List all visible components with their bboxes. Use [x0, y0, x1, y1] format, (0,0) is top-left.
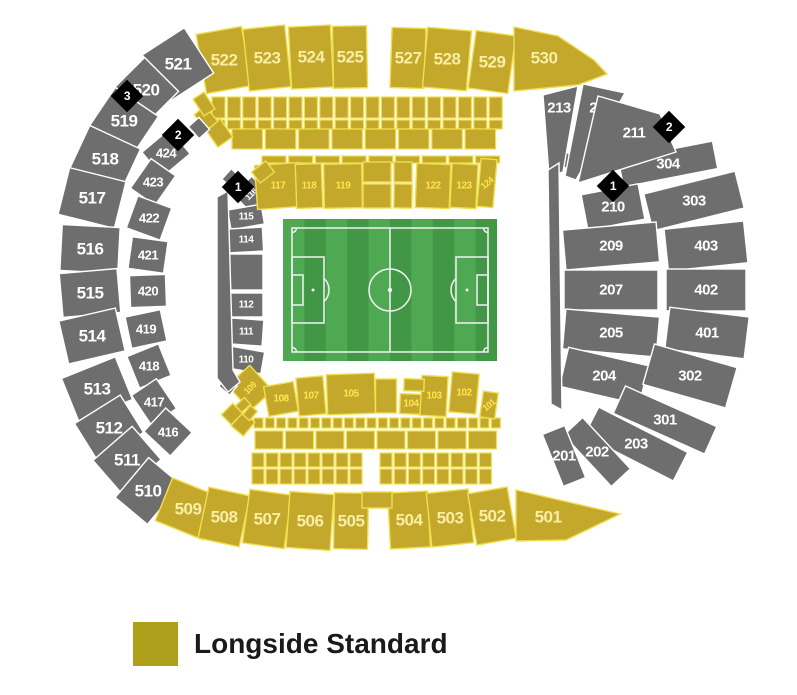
- section-block[interactable]: [227, 120, 240, 129]
- section-block[interactable]: [376, 379, 397, 413]
- section-block[interactable]: [404, 379, 424, 392]
- section-block[interactable]: [344, 418, 353, 428]
- section-block[interactable]: [437, 469, 449, 484]
- section-block[interactable]: [474, 97, 487, 118]
- section-530[interactable]: 530: [514, 27, 607, 91]
- section-124[interactable]: 124: [477, 158, 497, 207]
- section-block[interactable]: [394, 162, 412, 182]
- section-block[interactable]: [322, 453, 334, 467]
- section-block[interactable]: [320, 120, 333, 129]
- section-block[interactable]: [438, 431, 466, 449]
- section-block[interactable]: [480, 418, 489, 428]
- section-block[interactable]: [286, 431, 314, 449]
- section-block[interactable]: [412, 97, 425, 118]
- section-block[interactable]: [469, 418, 478, 428]
- section-block[interactable]: [265, 129, 296, 149]
- section-507[interactable]: 507: [242, 489, 291, 548]
- penalty-spot-right: [466, 289, 469, 292]
- section-block[interactable]: [446, 418, 455, 428]
- section-block[interactable]: [277, 418, 286, 428]
- section-band: [548, 163, 562, 410]
- section-block[interactable]: [423, 453, 435, 467]
- pitch-stripe: [454, 219, 475, 361]
- section-502[interactable]: 502: [468, 487, 516, 545]
- stadium-map: 5225235245255275285295215205195185175165…: [0, 0, 797, 695]
- section-block[interactable]: [315, 156, 339, 163]
- section-block[interactable]: [333, 418, 342, 428]
- section-block[interactable]: [469, 431, 497, 449]
- section-block[interactable]: [288, 418, 297, 428]
- section-102[interactable]: 102: [449, 372, 479, 414]
- section-504[interactable]: 504: [388, 491, 431, 549]
- pitch-stripe: [411, 219, 432, 361]
- section-524[interactable]: 524: [288, 25, 333, 89]
- section-block[interactable]: [322, 469, 334, 484]
- section-block[interactable]: [332, 129, 363, 149]
- section-523[interactable]: 523: [243, 25, 291, 91]
- section-block[interactable]: [451, 453, 463, 467]
- section-529[interactable]: 529: [468, 30, 516, 93]
- section-block[interactable]: [289, 120, 302, 129]
- section-block[interactable]: [255, 431, 283, 449]
- section-block[interactable]: [377, 431, 405, 449]
- section-block[interactable]: [289, 156, 313, 163]
- section-block[interactable]: [397, 97, 410, 118]
- section-block[interactable]: [380, 453, 392, 467]
- section-block[interactable]: [367, 418, 376, 428]
- pitch: [283, 219, 497, 361]
- section-block[interactable]: [479, 453, 491, 467]
- section-block[interactable]: [266, 453, 278, 467]
- section-block[interactable]: [304, 120, 317, 129]
- section-block[interactable]: [399, 129, 430, 149]
- section-block[interactable]: [243, 97, 256, 118]
- section-block[interactable]: [322, 418, 331, 428]
- section-block[interactable]: [397, 120, 410, 129]
- section-108[interactable]: 108: [264, 382, 299, 417]
- section-block[interactable]: [381, 120, 394, 129]
- section-block[interactable]: [489, 120, 502, 129]
- section-block[interactable]: [299, 418, 308, 428]
- pitch-centre-spot: [388, 288, 392, 292]
- section-block[interactable]: [489, 97, 502, 118]
- section-block[interactable]: [274, 97, 287, 118]
- section-block[interactable]: [443, 120, 456, 129]
- section-block[interactable]: [474, 120, 487, 129]
- section-block[interactable]: [336, 469, 348, 484]
- section-block[interactable]: [408, 469, 420, 484]
- section-block[interactable]: [274, 120, 287, 129]
- section-block[interactable]: [252, 469, 264, 484]
- section-506[interactable]: 506: [286, 492, 334, 551]
- section-block[interactable]: [491, 418, 500, 428]
- section-block[interactable]: [378, 418, 387, 428]
- section-block[interactable]: [316, 431, 344, 449]
- section-418: 418: [127, 344, 171, 388]
- section-419: 419: [125, 310, 167, 349]
- section-block[interactable]: [335, 97, 348, 118]
- section-114: 114: [228, 227, 263, 253]
- section-block[interactable]: [351, 97, 364, 118]
- section-122[interactable]: 122: [415, 163, 451, 208]
- section-block[interactable]: [465, 129, 496, 149]
- section-block[interactable]: [294, 453, 306, 467]
- section-block[interactable]: [401, 418, 410, 428]
- section-block[interactable]: [311, 418, 320, 428]
- section-block[interactable]: [465, 469, 477, 484]
- section-block[interactable]: [362, 492, 392, 508]
- section-501[interactable]: 501: [516, 490, 620, 541]
- section-block[interactable]: [265, 418, 274, 428]
- section-block[interactable]: [423, 469, 435, 484]
- legend-label: Longside Standard: [194, 628, 448, 660]
- section-421: 421: [128, 237, 168, 274]
- section-block[interactable]: [422, 156, 446, 163]
- section-block[interactable]: [479, 469, 491, 484]
- section-516: 516: [60, 225, 120, 274]
- section-block[interactable]: [336, 453, 348, 467]
- section-block[interactable]: [424, 418, 433, 428]
- section-block[interactable]: [280, 453, 292, 467]
- section-107[interactable]: 107: [296, 376, 326, 416]
- section-block[interactable]: [294, 469, 306, 484]
- section-402: 402: [666, 269, 746, 311]
- section-block[interactable]: [458, 120, 471, 129]
- section-block[interactable]: [320, 97, 333, 118]
- section-112: 112: [229, 293, 263, 317]
- section-block[interactable]: [227, 97, 240, 118]
- section-block[interactable]: [408, 431, 436, 449]
- section-525[interactable]: 525: [332, 26, 367, 89]
- section-block[interactable]: [258, 120, 271, 129]
- section-block[interactable]: [363, 162, 391, 182]
- section-block[interactable]: [335, 120, 348, 129]
- section-block[interactable]: [308, 469, 320, 484]
- stadium-seat-map: 5225235245255275285295215205195185175165…: [0, 0, 797, 695]
- section-block[interactable]: [366, 97, 379, 118]
- section-block[interactable]: [243, 120, 256, 129]
- section-block[interactable]: [394, 469, 406, 484]
- section-block[interactable]: [363, 184, 391, 208]
- section-block[interactable]: [289, 97, 302, 118]
- pitch-stripe: [369, 219, 390, 361]
- section-119[interactable]: 119: [324, 164, 363, 209]
- section-block[interactable]: [394, 184, 412, 208]
- section-block[interactable]: [428, 120, 441, 129]
- section-block[interactable]: [304, 97, 317, 118]
- section-block[interactable]: [408, 453, 420, 467]
- section-block[interactable]: [394, 453, 406, 467]
- section-block[interactable]: [435, 418, 444, 428]
- section-block[interactable]: [280, 469, 292, 484]
- section-503[interactable]: 503: [426, 489, 473, 547]
- pitch-stripe: [283, 219, 304, 361]
- section-105[interactable]: 105: [326, 373, 375, 415]
- section-block: [229, 254, 263, 290]
- section-block[interactable]: [428, 97, 441, 118]
- section-block[interactable]: [381, 97, 394, 118]
- section-block[interactable]: [252, 453, 264, 467]
- section-528[interactable]: 528: [422, 27, 471, 91]
- section-207: 207: [564, 270, 658, 310]
- section-209: 209: [562, 222, 659, 270]
- section-block[interactable]: [449, 156, 473, 163]
- section-123[interactable]: 123: [450, 163, 478, 208]
- section-101[interactable]: 101: [480, 391, 498, 419]
- section-block[interactable]: [258, 97, 271, 118]
- section-block[interactable]: [266, 469, 278, 484]
- section-block[interactable]: [356, 418, 365, 428]
- section-block[interactable]: [458, 97, 471, 118]
- section-block[interactable]: [443, 97, 456, 118]
- section-block[interactable]: [350, 469, 362, 484]
- section-block[interactable]: [465, 453, 477, 467]
- section-104[interactable]: 104: [400, 394, 423, 415]
- section-block[interactable]: [412, 120, 425, 129]
- section-block[interactable]: [437, 453, 449, 467]
- section-block[interactable]: [390, 418, 399, 428]
- section-422: 422: [126, 196, 171, 240]
- section-block[interactable]: [380, 469, 392, 484]
- section-block[interactable]: [365, 129, 396, 149]
- section-527[interactable]: 527: [390, 27, 426, 88]
- section-block[interactable]: [232, 129, 263, 149]
- section-block[interactable]: [350, 453, 362, 467]
- section-block[interactable]: [308, 453, 320, 467]
- section-block[interactable]: [254, 418, 263, 428]
- section-block[interactable]: [412, 418, 421, 428]
- section-block[interactable]: [432, 129, 463, 149]
- section-block[interactable]: [351, 120, 364, 129]
- penalty-spot-left: [312, 289, 315, 292]
- section-block[interactable]: [457, 418, 466, 428]
- section-block[interactable]: [451, 469, 463, 484]
- section-block[interactable]: [299, 129, 330, 149]
- legend-swatch-longside-standard: [133, 622, 178, 666]
- section-420: 420: [129, 274, 166, 307]
- section-111: 111: [228, 318, 264, 346]
- section-block[interactable]: [347, 431, 375, 449]
- legend: Longside Standard: [133, 622, 448, 666]
- section-403: 403: [664, 221, 748, 271]
- section-118[interactable]: 118: [295, 164, 323, 209]
- section-block[interactable]: [366, 120, 379, 129]
